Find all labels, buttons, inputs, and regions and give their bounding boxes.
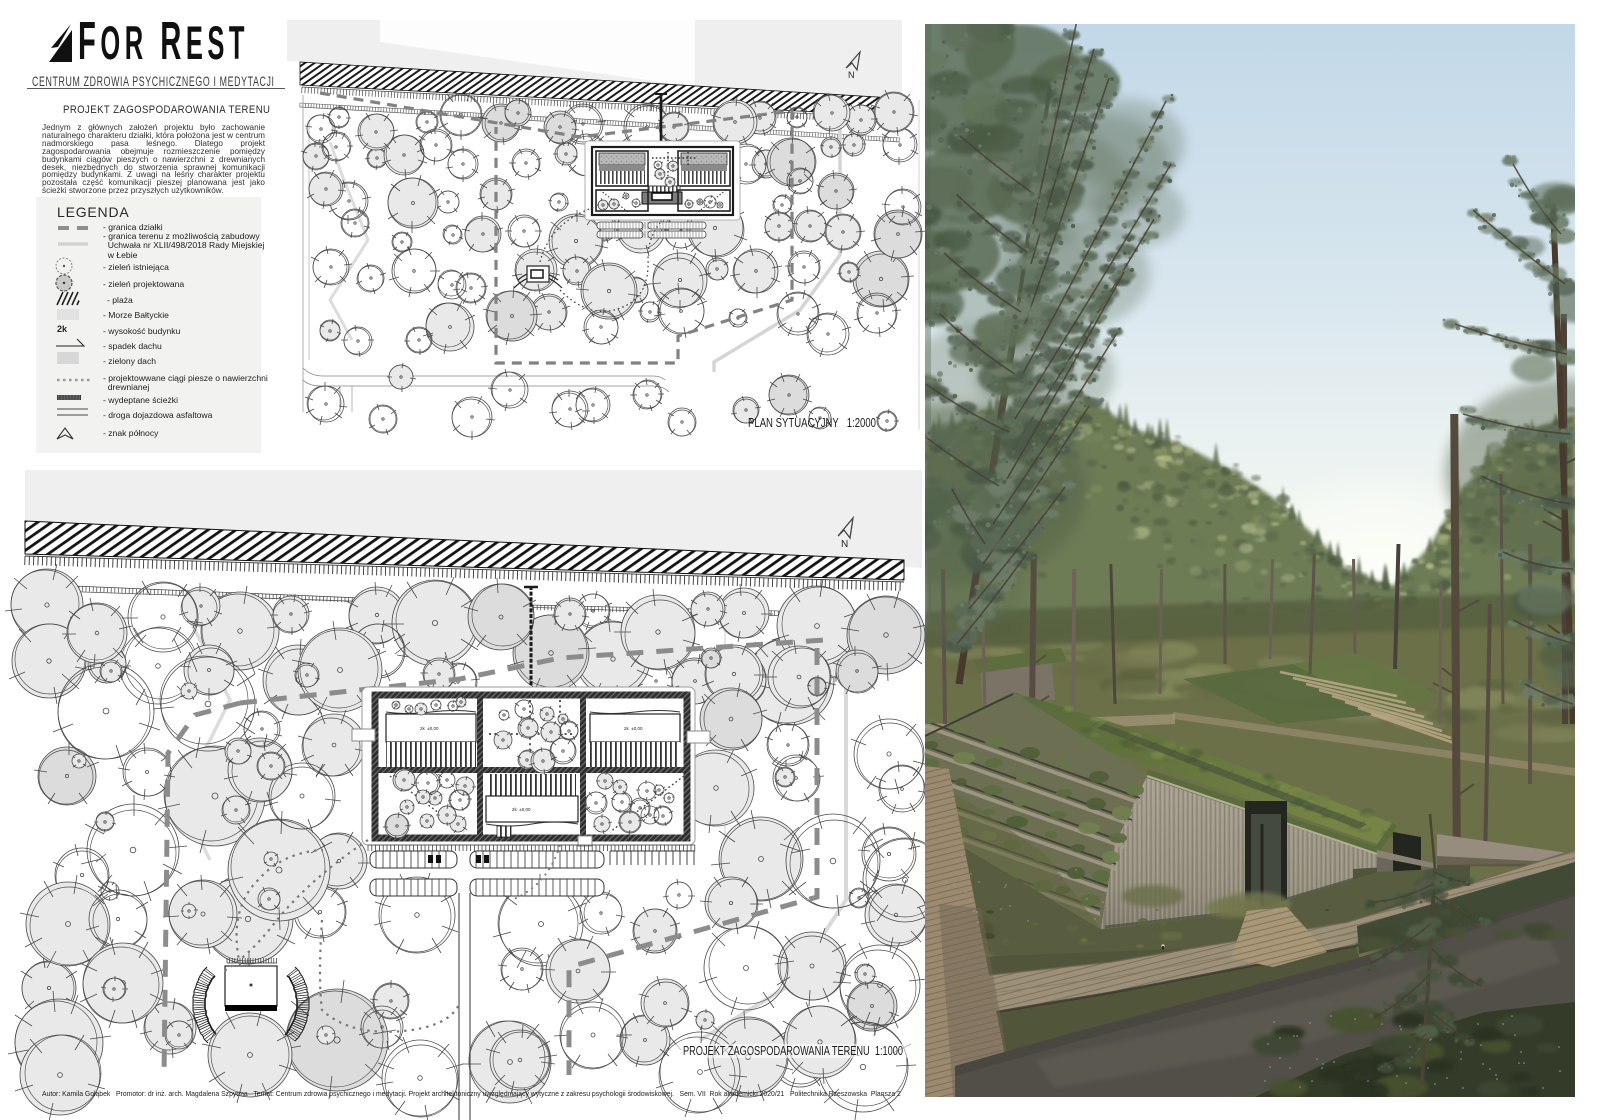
svg-text:2k ±0,00: 2k ±0,00: [512, 807, 531, 812]
svg-text:N: N: [841, 539, 848, 550]
svg-text:2k: 2k: [57, 324, 68, 334]
svg-text:2k ±0,00: 2k ±0,00: [420, 726, 439, 731]
svg-text:PROJEKT ZAGOSPODAROWANIA TEREN: PROJEKT ZAGOSPODAROWANIA TERENU 1:1000: [683, 1044, 903, 1058]
svg-text:PLAN SYTUACYJNY 1:2000: PLAN SYTUACYJNY 1:2000: [748, 416, 876, 430]
svg-text:2k ±0,00: 2k ±0,00: [624, 726, 643, 731]
svg-text:N: N: [848, 70, 855, 80]
